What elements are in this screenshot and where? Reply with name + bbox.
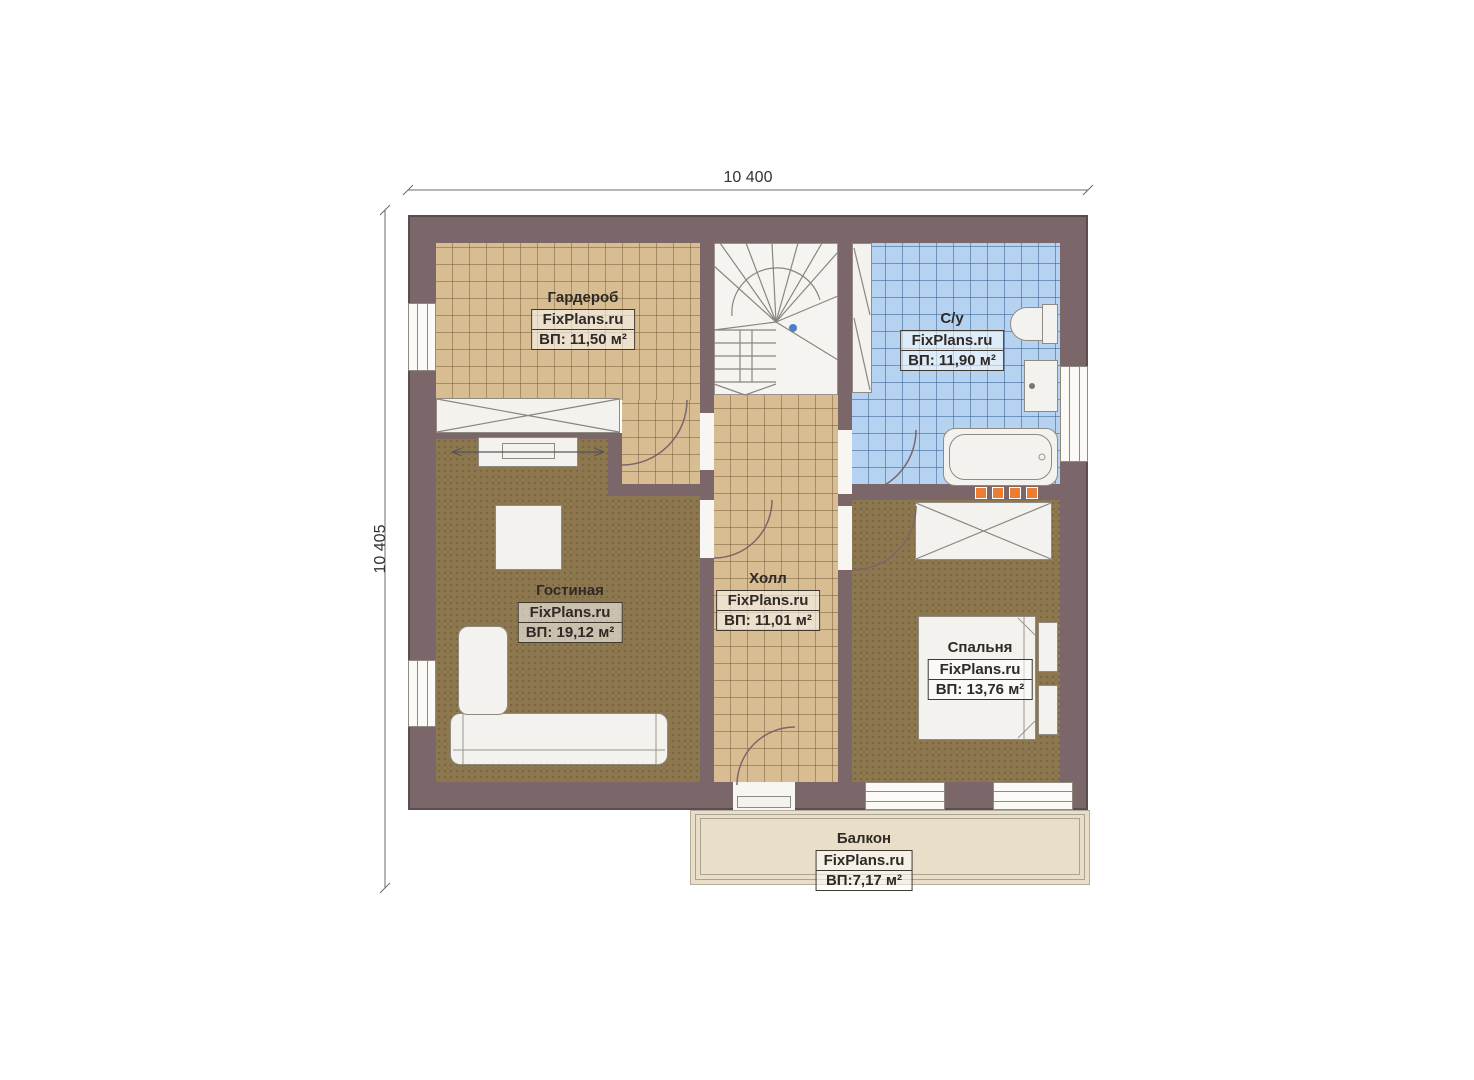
- balcony-door-leaf: [737, 796, 791, 808]
- stairwell: [714, 243, 838, 395]
- vestibule-floor: [622, 400, 700, 488]
- room-label-bathroom: С/у FixPlans.ru ВП: 11,90 м²: [900, 310, 1004, 371]
- bathtub-inner: [949, 434, 1052, 480]
- wardrobe-closet: [436, 398, 620, 433]
- brand-tag: FixPlans.ru: [929, 660, 1032, 679]
- area-tag: ВП: 11,50 м²: [532, 329, 634, 349]
- area-tag: ВП: 13,76 м²: [929, 679, 1032, 699]
- window-west-2: [408, 660, 436, 727]
- area-tag: ВП: 11,01 м²: [717, 610, 819, 630]
- bathroom-shaft: [852, 243, 872, 393]
- room-info-box: FixPlans.ru ВП: 13,76 м²: [928, 659, 1033, 700]
- room-label-balcony: Балкон FixPlans.ru ВП:7,17 м²: [816, 830, 913, 891]
- brand-tag: FixPlans.ru: [532, 310, 634, 329]
- room-label-hall: Холл FixPlans.ru ВП: 11,01 м²: [716, 570, 820, 631]
- opening-hall-bedroom: [838, 506, 852, 570]
- window-east-1: [1060, 366, 1088, 462]
- sink: [1024, 360, 1058, 412]
- opening-hall-bathroom: [838, 430, 852, 494]
- dimension-width-label: 10 400: [724, 169, 773, 187]
- room-name: С/у: [940, 310, 963, 327]
- brand-tag: FixPlans.ru: [717, 591, 819, 610]
- brand-tag: FixPlans.ru: [901, 331, 1003, 350]
- opening-living-hall: [700, 500, 714, 558]
- area-tag: ВП: 19,12 м²: [519, 622, 622, 642]
- room-info-box: FixPlans.ru ВП: 11,01 м²: [716, 590, 820, 631]
- wall-living-ne-horizontal: [608, 484, 700, 496]
- tv-stand-inner: [502, 443, 555, 459]
- area-tag: ВП:7,17 м²: [817, 870, 912, 890]
- floor-plan-canvas: 10 400 10 405 Гардероб FixPlans.ru ВП: 1…: [0, 0, 1474, 1080]
- wall-stair-west: [700, 243, 714, 400]
- bedroom-closet: [915, 502, 1052, 560]
- nightstand-2: [1038, 685, 1058, 735]
- room-info-box: FixPlans.ru ВП:7,17 м²: [816, 850, 913, 891]
- window-west-1: [408, 303, 436, 371]
- wall-east: [1060, 243, 1088, 782]
- room-info-box: FixPlans.ru ВП: 19,12 м²: [518, 602, 623, 643]
- towel-radiator-segment: [1026, 487, 1038, 499]
- room-name: Холл: [749, 570, 787, 587]
- sofa-seat: [450, 713, 668, 765]
- opening-vestibule-hall: [700, 413, 714, 470]
- room-name: Гостиная: [536, 582, 604, 599]
- room-label-bedroom: Спальня FixPlans.ru ВП: 13,76 м²: [928, 639, 1033, 700]
- room-name: Спальня: [948, 639, 1013, 656]
- towel-radiator-segment: [992, 487, 1004, 499]
- dimension-height-label: 10 405: [372, 525, 390, 574]
- room-name: Гардероб: [548, 289, 619, 306]
- room-name: Балкон: [837, 830, 891, 847]
- window-south-2: [993, 782, 1073, 810]
- window-south-1: [865, 782, 945, 810]
- area-tag: ВП: 11,90 м²: [901, 350, 1003, 370]
- wall-north: [408, 215, 1088, 243]
- towel-radiator-segment: [975, 487, 987, 499]
- sofa-chaise: [458, 626, 508, 715]
- brand-tag: FixPlans.ru: [817, 851, 912, 870]
- toilet-tank: [1042, 304, 1058, 344]
- wall-living-ne-vertical: [608, 433, 622, 484]
- room-label-living: Гостиная FixPlans.ru ВП: 19,12 м²: [518, 582, 623, 643]
- room-label-wardrobe: Гардероб FixPlans.ru ВП: 11,50 м²: [531, 289, 635, 350]
- brand-tag: FixPlans.ru: [519, 603, 622, 622]
- coffee-table: [495, 505, 562, 570]
- towel-radiator-segment: [1009, 487, 1021, 499]
- nightstand-1: [1038, 622, 1058, 672]
- room-info-box: FixPlans.ru ВП: 11,90 м²: [900, 330, 1004, 371]
- room-info-box: FixPlans.ru ВП: 11,50 м²: [531, 309, 635, 350]
